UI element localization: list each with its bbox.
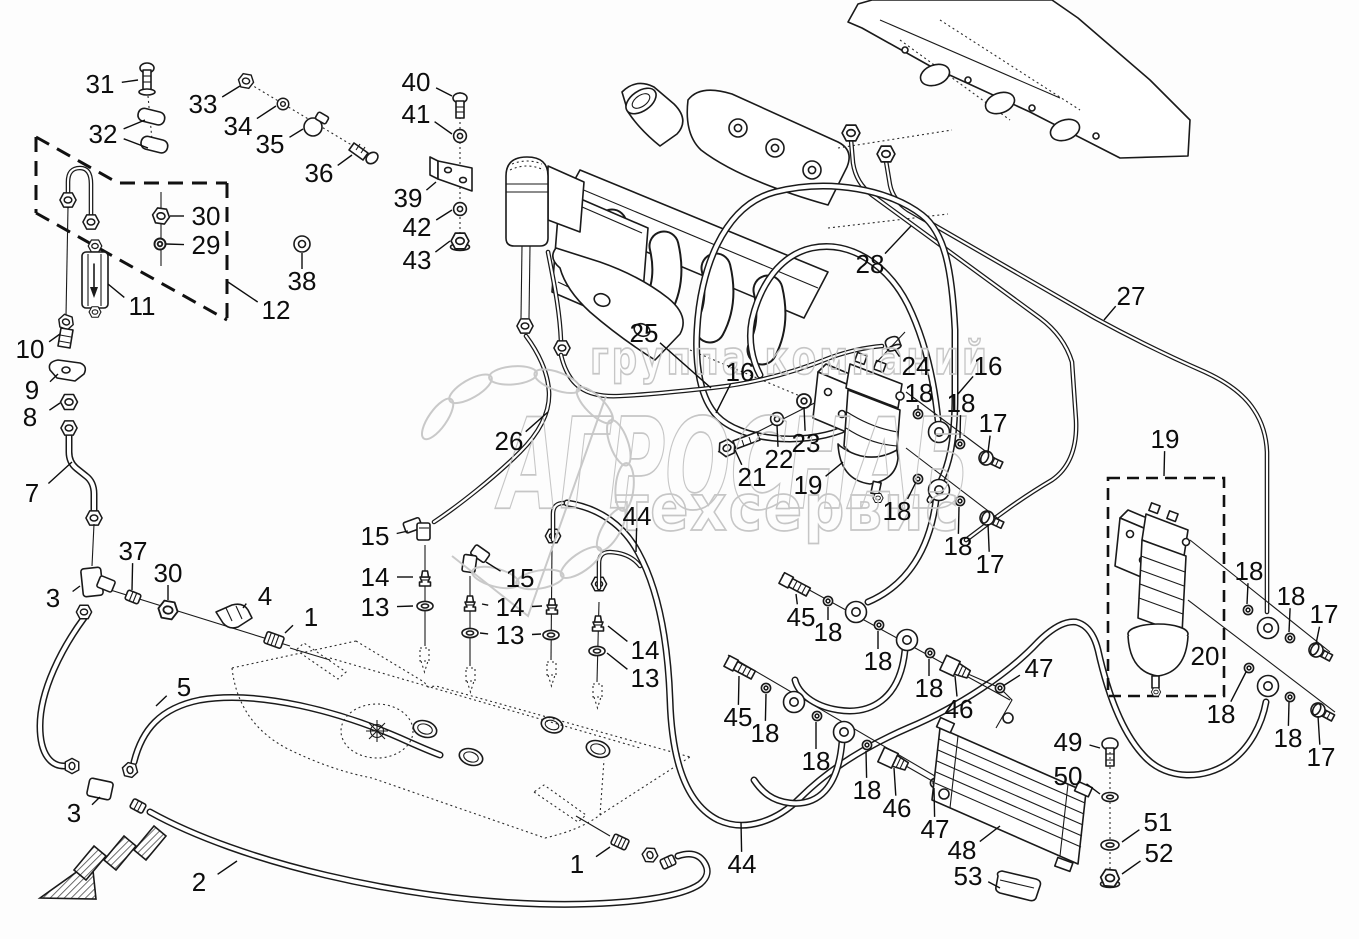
- part-number: 19: [1151, 424, 1180, 454]
- part-callout-18: 18: [751, 694, 780, 748]
- callout-leader: [156, 696, 167, 706]
- banjo-bolt-45: [779, 573, 811, 598]
- part-number: 46: [883, 793, 912, 823]
- part-callout-15: 15: [361, 521, 408, 551]
- bracket-39-flange: [430, 157, 438, 179]
- callout-leader: [1003, 675, 1020, 686]
- part-callout-53: 53: [954, 861, 1000, 891]
- part-number: 13: [496, 620, 525, 650]
- callout-leader: [958, 507, 959, 534]
- bracket-39: [438, 161, 472, 191]
- part-callout-52: 52: [1122, 838, 1173, 874]
- callout-leader: [608, 626, 627, 641]
- oring-18: [874, 620, 883, 629]
- callout-leader: [1231, 672, 1246, 702]
- callout-leader: [1316, 627, 1320, 644]
- washer-42: [454, 203, 467, 216]
- oring-18: [812, 711, 821, 720]
- callout-leader: [532, 634, 541, 635]
- part-callout-18: 18: [1235, 556, 1264, 604]
- callout-leader: [980, 826, 1000, 842]
- hose-7-top-nut: [61, 421, 77, 435]
- clamp-32-upper: [137, 107, 166, 126]
- oring-47: [995, 683, 1004, 692]
- part-number: 17: [1310, 599, 1339, 629]
- nut-43: [451, 233, 469, 249]
- clamp-32-lower: [140, 135, 169, 154]
- part-number: 44: [728, 849, 757, 879]
- part-number: 29: [192, 230, 221, 260]
- part-number: 15: [506, 563, 535, 593]
- callout-leader: [1164, 451, 1165, 476]
- callout-leader: [934, 788, 935, 817]
- part-callout-45: 45: [787, 594, 816, 632]
- part-number: 22: [765, 444, 794, 474]
- part-callout-38: 38: [288, 253, 317, 296]
- oring-18: [1244, 663, 1253, 672]
- part-callout-9: 9: [25, 374, 58, 405]
- part-callout-40: 40: [402, 67, 452, 97]
- part-callout-3: 3: [67, 797, 100, 828]
- part-callout-18: 18: [802, 722, 831, 776]
- pipe-28-nut: [842, 125, 860, 141]
- callout-leader: [222, 86, 240, 97]
- part-callout-18: 18: [1277, 581, 1306, 632]
- part-number: 18: [853, 775, 882, 805]
- direction-arrow-icon: [40, 826, 166, 899]
- filler-cap-icon: [366, 720, 388, 742]
- oring-18: [823, 596, 832, 605]
- callout-leader: [1104, 306, 1116, 320]
- part-number: 39: [394, 183, 423, 213]
- part-number: 23: [792, 428, 821, 458]
- callout-leader: [1289, 608, 1290, 632]
- oring-18: [1285, 692, 1294, 701]
- part-number: 45: [787, 602, 816, 632]
- part-number: 3: [46, 583, 60, 613]
- part-number: 15: [361, 521, 390, 551]
- part-number: 47: [921, 814, 950, 844]
- banjo-union: [1258, 618, 1279, 639]
- hand-pump-11-body: [82, 252, 108, 308]
- fuel-tank: [232, 641, 690, 838]
- part-number: 46: [945, 694, 974, 724]
- callout-leader: [988, 524, 989, 552]
- part-number: 18: [1235, 556, 1264, 586]
- banjo-union: [784, 692, 805, 713]
- banjo-union: [846, 602, 867, 623]
- nut-30: [152, 207, 171, 224]
- callout-leader: [436, 210, 452, 220]
- part-number: 36: [305, 158, 334, 188]
- tee-3-lower: [86, 778, 113, 801]
- callout-leader: [228, 282, 258, 302]
- callout-leader: [290, 129, 304, 137]
- oring-18: [1285, 633, 1294, 642]
- washer-13: [417, 601, 433, 610]
- part-number: 34: [224, 111, 253, 141]
- callout-leader: [894, 768, 896, 796]
- callout-leader: [435, 241, 450, 252]
- callout-leader: [607, 653, 627, 669]
- part-callout-32: 32: [89, 119, 148, 149]
- part-number: 7: [25, 478, 39, 508]
- fitting-14: [465, 596, 476, 611]
- hose-7-bottom-nut: [86, 511, 102, 525]
- callout-leader: [73, 586, 80, 592]
- plate-53: [996, 871, 1041, 901]
- part-number: 18: [905, 378, 934, 408]
- pipe-27-nut: [877, 146, 895, 162]
- banjo-union: [897, 630, 918, 651]
- part-number: 17: [976, 549, 1005, 579]
- part-callout-17: 17: [979, 408, 1008, 452]
- part-callout-18: 18: [905, 378, 934, 409]
- oring-18: [761, 683, 770, 692]
- part-number: 26: [495, 426, 524, 456]
- part-callout-17: 17: [1310, 599, 1339, 644]
- part-callout-29: 29: [166, 230, 220, 260]
- part-callout-30: 30: [154, 558, 183, 600]
- part-number: 19: [794, 470, 823, 500]
- part-callout-3: 3: [46, 583, 80, 613]
- callout-leader: [765, 694, 766, 721]
- part-number: 40: [402, 67, 431, 97]
- part-number: 13: [361, 592, 390, 622]
- part-number: 18: [751, 718, 780, 748]
- washer-13: [543, 630, 559, 639]
- callout-leader: [480, 633, 488, 634]
- oring-18: [925, 648, 934, 657]
- part-number: 47: [1025, 653, 1054, 683]
- part-callout-35: 35: [256, 129, 303, 159]
- part-callout-28: 28: [856, 226, 911, 279]
- part-number: 9: [25, 375, 39, 405]
- part-number: 44: [623, 501, 652, 531]
- part-number: 30: [192, 201, 221, 231]
- part-number: 18: [915, 673, 944, 703]
- part-callout-1: 1: [285, 602, 318, 633]
- part-number: 5: [177, 672, 191, 702]
- callout-leader: [108, 284, 124, 297]
- prefilter-body: [1138, 540, 1186, 634]
- callout-leader: [218, 861, 237, 874]
- part-number: 49: [1054, 727, 1083, 757]
- part-callout-20: 20: [1184, 641, 1219, 671]
- callout-leader: [426, 182, 436, 190]
- part-number: 18: [883, 496, 912, 526]
- part-callout-19: 19: [1151, 424, 1180, 476]
- callout-leader: [1090, 745, 1101, 748]
- part-callout-48: 48: [948, 826, 1000, 865]
- part-number: 45: [724, 702, 753, 732]
- part-callout-18: 18: [864, 631, 893, 676]
- banjo-bolt-17: [1309, 701, 1337, 725]
- pipe-nut: [60, 193, 76, 207]
- washer-29: [154, 238, 165, 249]
- ferrule-37: [125, 590, 142, 605]
- part-callout-1: 1: [570, 847, 610, 879]
- fitting-14: [420, 571, 431, 586]
- washer-41: [454, 130, 467, 143]
- part-number: 18: [1277, 581, 1306, 611]
- part-number: 18: [814, 617, 843, 647]
- washer-13: [462, 628, 478, 637]
- part-number: 33: [189, 89, 218, 119]
- bolt-31-shaft: [143, 70, 151, 90]
- part-callout-4: 4: [243, 581, 272, 611]
- part-callout-14: 14: [361, 562, 413, 592]
- clamp-hardware-cluster: [137, 63, 381, 266]
- part-number: 18: [947, 388, 976, 418]
- part-number: 16: [974, 351, 1003, 381]
- fitting-1: [263, 631, 284, 648]
- part-callout-7: 7: [25, 462, 72, 508]
- part-number: 24: [902, 351, 931, 381]
- callout-leader: [48, 462, 72, 484]
- banjo-bolt-45: [724, 656, 756, 681]
- part-number: 21: [738, 462, 767, 492]
- part-callout-51: 51: [1122, 807, 1172, 842]
- part-number: 32: [89, 119, 118, 149]
- callout-leader: [960, 415, 961, 438]
- part-callout-27: 27: [1104, 281, 1145, 320]
- phantom-bolts: [420, 648, 602, 708]
- part-callout-8: 8: [23, 402, 60, 432]
- callout-leader: [49, 403, 60, 410]
- part-callout-30: 30: [170, 201, 220, 231]
- part-number: 18: [864, 646, 893, 676]
- part-number: 18: [1207, 699, 1236, 729]
- callout-leader: [738, 676, 739, 705]
- oring-18: [862, 740, 871, 749]
- part-callout-45: 45: [724, 676, 753, 732]
- callout-leader: [124, 120, 145, 129]
- washer-34: [277, 98, 289, 110]
- part-number: 53: [954, 861, 983, 891]
- banjo-union: [1258, 676, 1279, 697]
- part-callout-18: 18: [1207, 672, 1246, 729]
- part-callout-13: 13: [480, 620, 541, 650]
- bolt-10-shaft: [58, 328, 73, 348]
- callout-leader: [436, 88, 452, 96]
- part-callout-17: 17: [1307, 716, 1336, 772]
- part-number: 52: [1145, 838, 1174, 868]
- callout-leader: [285, 625, 293, 633]
- fitting-14: [593, 616, 604, 631]
- part-number: 11: [129, 291, 156, 321]
- part-number: 43: [403, 245, 432, 275]
- part-callout-37: 37: [119, 536, 148, 590]
- part-number: 14: [361, 562, 390, 592]
- diagram-page: группа компаний АГРОСНАБ техсервис 31323…: [0, 0, 1359, 939]
- part-number: 51: [1144, 807, 1173, 837]
- part-callout-39: 39: [394, 182, 436, 213]
- callout-leader: [532, 606, 542, 607]
- pipe-26-nut: [517, 319, 533, 333]
- part-callout-41: 41: [402, 99, 452, 134]
- fitting-14: [547, 599, 558, 614]
- callout-leader: [397, 606, 413, 607]
- callout-leader: [482, 604, 488, 605]
- part-callout-18: 18: [1274, 702, 1303, 753]
- part-number: 50: [1054, 761, 1083, 791]
- bowl-20: [1128, 636, 1188, 676]
- part-number: 4: [258, 581, 272, 611]
- part-callout-10: 10: [16, 334, 60, 364]
- part-callout-5: 5: [156, 672, 191, 706]
- part-number: 42: [403, 212, 432, 242]
- callout-leader: [1247, 583, 1248, 604]
- part-number: 37: [119, 536, 148, 566]
- part-callout-13: 13: [361, 592, 413, 622]
- banjo-bolt-17: [1307, 641, 1335, 665]
- part-number: 1: [570, 849, 584, 879]
- part-callout-46: 46: [945, 676, 974, 724]
- part-number: 8: [23, 402, 37, 432]
- part-number: 10: [16, 334, 45, 364]
- banjo-union: [834, 722, 855, 743]
- callout-leader: [166, 244, 184, 245]
- bracket-39-hardware: [430, 92, 472, 251]
- part-number: 3: [67, 798, 81, 828]
- part-number: 25: [630, 318, 659, 348]
- part-number: 13: [631, 663, 660, 693]
- part-callout-11: 11: [108, 284, 156, 321]
- callout-leader: [257, 106, 276, 119]
- callout-leader: [132, 563, 133, 590]
- part-number: 12: [262, 295, 291, 325]
- part-callout-43: 43: [403, 241, 450, 275]
- part-number: 14: [631, 635, 660, 665]
- part-callout-18: 18: [853, 751, 882, 805]
- part-callout-36: 36: [305, 155, 352, 188]
- part-callout-2: 2: [192, 861, 237, 897]
- callout-leader: [1122, 830, 1139, 842]
- part-number: 31: [86, 69, 115, 99]
- part-callout-44: 44: [728, 822, 757, 879]
- part-number: 16: [726, 357, 755, 387]
- left-fitting-stack: [49, 313, 102, 566]
- part-callout-49: 49: [1054, 727, 1100, 757]
- part-callout-14: 14: [482, 592, 542, 622]
- part-number: 18: [1274, 723, 1303, 753]
- callout-leader: [1318, 716, 1320, 745]
- part-number: 28: [856, 249, 885, 279]
- part-number: 1: [304, 602, 318, 632]
- washer-13: [589, 646, 605, 655]
- part-callout-12: 12: [228, 282, 290, 325]
- part-number: 35: [256, 129, 285, 159]
- part-callout-18: 18: [814, 607, 843, 647]
- part-callout-18: 18: [915, 659, 944, 703]
- callout-leader: [988, 436, 990, 452]
- part-number: 17: [979, 408, 1008, 438]
- part-number: 38: [288, 266, 317, 296]
- callout-leader: [338, 155, 352, 165]
- oil-filter-canister: [506, 157, 548, 246]
- elbow-15: [403, 517, 430, 540]
- nut-8: [61, 395, 78, 410]
- part-number: 27: [1117, 281, 1146, 311]
- banjo-bolt-17: [977, 449, 1005, 472]
- part-number: 14: [496, 592, 525, 622]
- tee-fitting-chain: [81, 567, 330, 660]
- union-46: [940, 655, 972, 681]
- part-number: 18: [802, 746, 831, 776]
- part-callout-42: 42: [403, 210, 452, 242]
- part-callout-50: 50: [1054, 761, 1100, 794]
- pump-cap-nut: [88, 240, 102, 252]
- part-number: 18: [944, 531, 973, 561]
- callout-leader: [885, 226, 911, 254]
- oring-18: [1243, 605, 1252, 614]
- nut-30: [157, 600, 179, 620]
- hose-2-ferrule: [129, 798, 146, 813]
- part-number: 30: [154, 558, 183, 588]
- part-callout-46: 46: [883, 768, 912, 823]
- pipe-nut: [83, 215, 99, 229]
- fitting-1-right: [610, 834, 629, 851]
- callout-leader: [866, 751, 867, 778]
- part-number: 2: [192, 867, 206, 897]
- parts-diagram-canvas: группа компаний АГРОСНАБ техсервис 31323…: [0, 0, 1359, 939]
- part-number: 17: [1307, 742, 1336, 772]
- part-number: 41: [402, 99, 431, 129]
- callout-leader: [741, 822, 742, 852]
- callout-leader: [435, 122, 452, 134]
- part-number: 20: [1191, 641, 1220, 671]
- part-callout-31: 31: [86, 69, 138, 99]
- callout-leader: [636, 528, 637, 552]
- callout-leader: [1122, 861, 1141, 874]
- callout-leader: [122, 80, 138, 82]
- callout-leader: [596, 847, 610, 857]
